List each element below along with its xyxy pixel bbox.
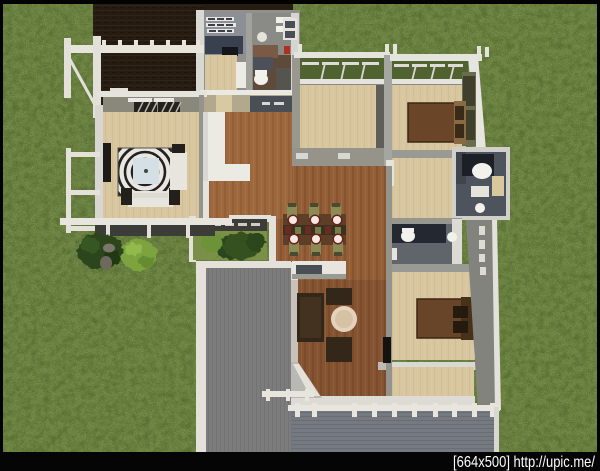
svg-text:[664x500] http://upic.me/: [664x500] http://upic.me/ (453, 454, 595, 471)
